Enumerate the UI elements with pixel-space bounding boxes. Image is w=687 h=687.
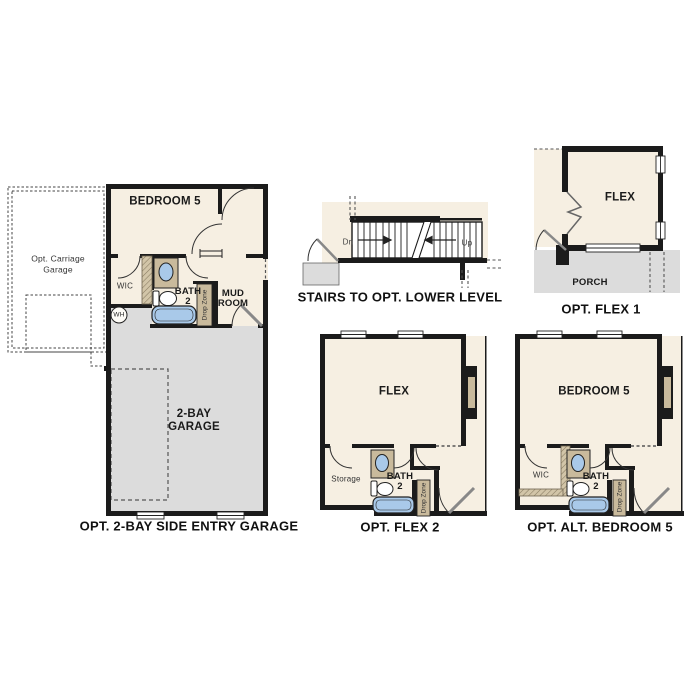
sink: [159, 263, 173, 281]
toilet: [153, 291, 177, 306]
bathtub: [569, 497, 609, 513]
label-bedroom5-main: BEDROOM 5: [129, 196, 200, 209]
label-dropzone-main: Drop Zone: [201, 290, 208, 321]
label-water-heater: WH: [113, 311, 124, 318]
bathtub: [152, 306, 196, 324]
label-flex1: FLEX: [605, 192, 635, 205]
wall-niche: [466, 366, 477, 419]
label-dropzone-flex2: Drop Zone: [420, 483, 427, 514]
label-bedroom5-alt: BEDROOM 5: [558, 386, 629, 399]
label-wic-main: WIC: [117, 283, 133, 292]
stairs-door-arc: [308, 239, 317, 261]
label-carriage-garage: Opt. Carriage Garage: [31, 253, 85, 274]
bathtub: [373, 497, 414, 513]
label-dropzone-alt: Drop Zone: [616, 482, 623, 513]
sink: [376, 455, 389, 472]
mudroom-wall-opening: [263, 259, 268, 280]
label-bath2-main: BATH 2: [175, 287, 201, 307]
caption-flex2-plan: OPT. FLEX 2: [360, 520, 439, 535]
label-garage: 2-BAY GARAGE: [168, 408, 220, 434]
vanity: [154, 258, 178, 288]
caption-alt-bedroom5-plan: OPT. ALT. BEDROOM 5: [527, 520, 673, 535]
label-bath2-flex2: BATH 2: [387, 472, 413, 492]
stoop: [303, 263, 339, 285]
caption-flex1-plan: OPT. FLEX 1: [561, 302, 640, 317]
label-wic-alt: WIC: [533, 472, 549, 481]
caption-garage-plan: OPT. 2-BAY SIDE ENTRY GARAGE: [80, 519, 299, 534]
floor-fills: [111, 189, 263, 511]
flex1-plan-drawing: [525, 140, 687, 300]
label-porch: PORCH: [572, 278, 607, 288]
label-mudroom: MUD ROOM: [218, 289, 248, 309]
floorplan-canvas: BEDROOM 5 Opt. Carriage Garage WIC BATH …: [0, 0, 687, 687]
garage-plan-drawing: [0, 180, 300, 540]
flex1-floor: [534, 149, 663, 247]
sink: [572, 455, 585, 472]
label-bath2-alt: BATH 2: [583, 472, 609, 492]
label-up: Up: [462, 240, 473, 249]
carriage-garage-dashed-outline: [8, 187, 108, 366]
caption-stairs-plan: STAIRS TO OPT. LOWER LEVEL: [298, 290, 503, 305]
label-dn: Dn: [343, 239, 354, 248]
label-flex2: FLEX: [379, 386, 409, 399]
wic-shelving-hatch: [142, 256, 152, 304]
label-storage: Storage: [331, 476, 360, 485]
wall-niche: [662, 366, 673, 419]
